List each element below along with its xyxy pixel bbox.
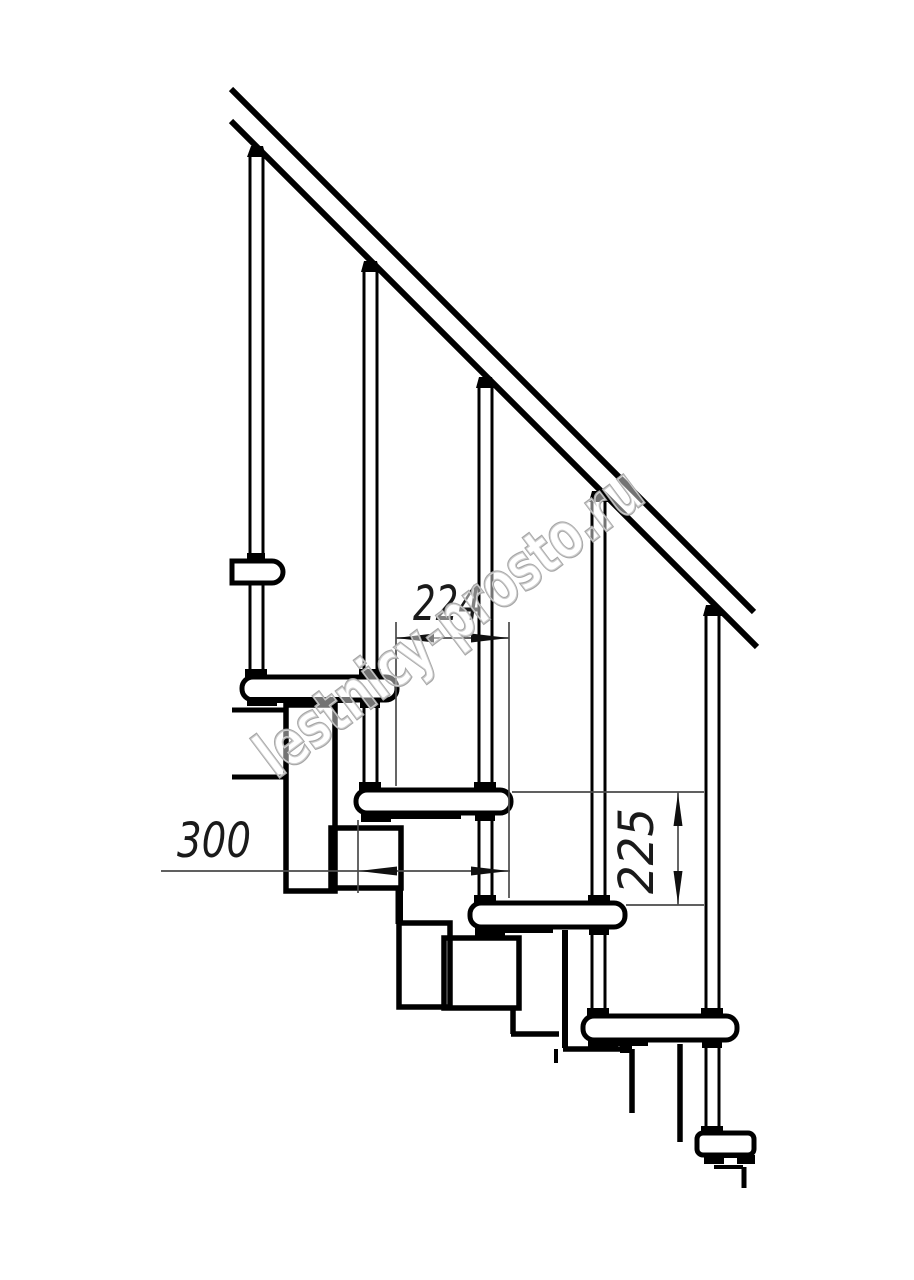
floor-bracket-bottom	[697, 1133, 755, 1188]
tread-2	[356, 790, 511, 813]
arrow-left-icon	[359, 867, 397, 876]
arrow-down-icon	[674, 871, 683, 904]
baluster-5-cap-icon	[703, 605, 722, 616]
arrow-up-icon	[674, 793, 683, 826]
bracket-body	[232, 561, 283, 583]
wall-bracket-top	[232, 553, 283, 583]
baluster-4	[592, 498, 605, 1018]
baluster-2-cap-icon	[361, 261, 380, 272]
baluster-5	[706, 612, 719, 1128]
dimension-300-label: 300	[177, 813, 251, 869]
baluster-1	[250, 154, 263, 677]
bracket-base	[704, 1155, 755, 1164]
bracket-body	[697, 1133, 754, 1155]
baluster-1-cap-icon	[247, 146, 266, 157]
module-tab-2	[396, 886, 404, 924]
watermark: lestnicy-prosto.ru	[241, 454, 657, 793]
staircase-technical-drawing: 224 300 225 lestnicy-prosto.ru	[0, 0, 914, 1280]
dimension-225: 225	[512, 792, 704, 905]
module-box-2	[331, 828, 401, 888]
tread-3	[470, 903, 625, 927]
baluster-rail-caps	[247, 146, 722, 616]
module-box-4	[444, 938, 519, 1008]
arrow-right-icon	[471, 867, 509, 876]
dimension-225-label: 225	[609, 808, 665, 894]
baluster-3-cap-icon	[476, 377, 495, 388]
drawing-svg: 224 300 225 lestnicy-prosto.ru	[0, 0, 914, 1280]
tread-4	[583, 1016, 737, 1040]
